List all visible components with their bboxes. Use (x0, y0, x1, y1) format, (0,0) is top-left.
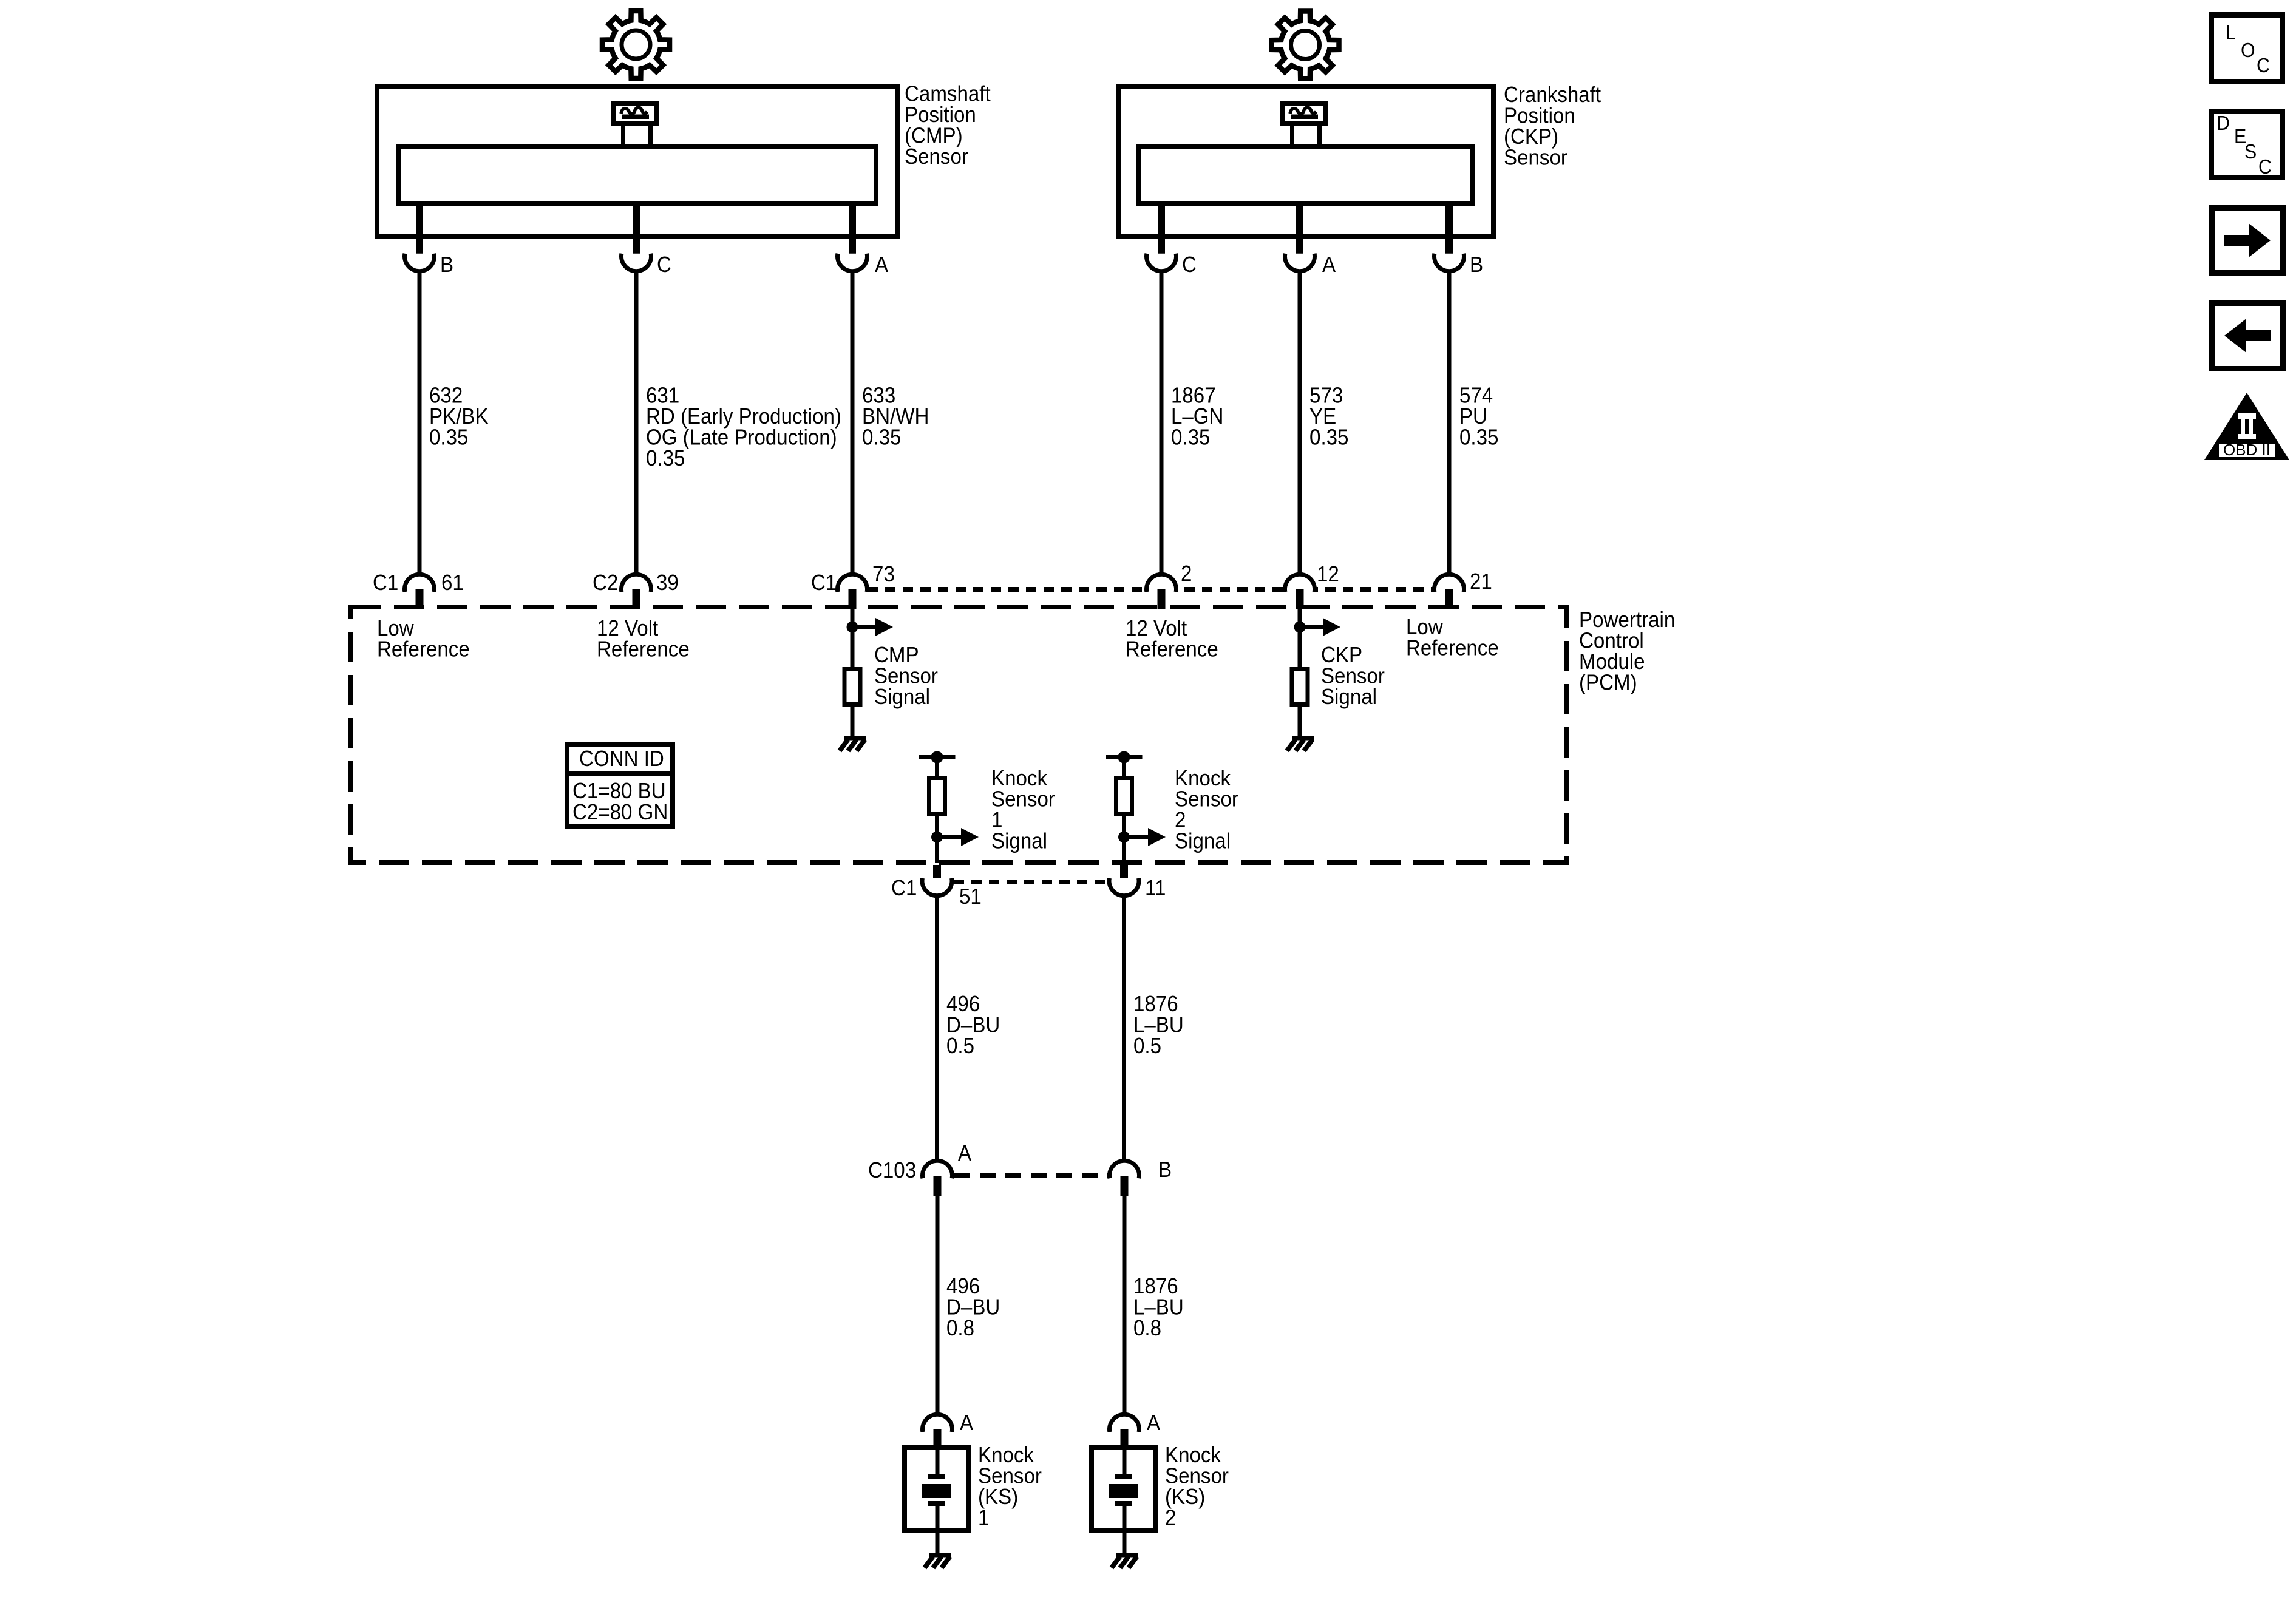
svg-text:1: 1 (978, 1506, 989, 1530)
svg-text:D: D (2216, 112, 2230, 134)
svg-text:2: 2 (1165, 1506, 1176, 1530)
svg-text:B: B (440, 253, 453, 277)
svg-text:Signal: Signal (874, 685, 930, 710)
svg-text:Signal: Signal (1321, 685, 1377, 710)
svg-text:OBD II: OBD II (2223, 441, 2271, 459)
svg-text:0.35: 0.35 (646, 447, 685, 471)
svg-text:C2: C2 (593, 571, 618, 595)
svg-text:A: A (958, 1142, 971, 1166)
svg-text:11: 11 (1145, 876, 1166, 901)
svg-text:A: A (1322, 253, 1336, 277)
svg-text:0.35: 0.35 (1459, 425, 1498, 450)
svg-text:C1: C1 (811, 571, 837, 595)
svg-text:0.35: 0.35 (1171, 425, 1210, 450)
svg-text:Reference: Reference (1406, 636, 1499, 660)
svg-text:Reference: Reference (1126, 637, 1218, 662)
svg-text:0.35: 0.35 (1309, 425, 1348, 450)
svg-text:21: 21 (1470, 570, 1492, 594)
svg-text:39: 39 (656, 571, 679, 595)
svg-text:C103: C103 (868, 1159, 916, 1183)
svg-text:O: O (2241, 39, 2255, 61)
svg-text:C1: C1 (891, 876, 917, 901)
svg-text:A: A (1147, 1411, 1160, 1436)
svg-text:Sensor: Sensor (1504, 146, 1567, 170)
svg-text:B: B (1470, 253, 1483, 277)
svg-text:Signal: Signal (991, 829, 1047, 853)
svg-text:Signal: Signal (1175, 829, 1231, 853)
svg-text:61: 61 (441, 571, 464, 595)
svg-text:(PCM): (PCM) (1579, 671, 1637, 695)
svg-text:A: A (875, 253, 888, 277)
svg-text:2: 2 (1181, 562, 1192, 586)
svg-text:51: 51 (959, 885, 982, 909)
svg-text:S: S (2244, 140, 2257, 163)
svg-text:A: A (960, 1411, 973, 1436)
svg-text:0.8: 0.8 (1133, 1317, 1161, 1341)
svg-text:C: C (657, 253, 671, 277)
svg-text:CONN ID: CONN ID (579, 747, 664, 771)
svg-text:12: 12 (1317, 563, 1339, 587)
svg-text:Sensor: Sensor (905, 145, 968, 169)
svg-text:C: C (1182, 253, 1197, 277)
svg-text:0.8: 0.8 (946, 1317, 974, 1341)
svg-text:0.5: 0.5 (1133, 1034, 1161, 1059)
svg-text:Reference: Reference (597, 637, 690, 662)
svg-text:L: L (2226, 21, 2236, 44)
svg-text:C1=80 BU: C1=80 BU (572, 779, 666, 804)
svg-text:C1: C1 (373, 571, 398, 595)
svg-text:0.5: 0.5 (946, 1034, 974, 1059)
svg-text:C: C (2257, 54, 2270, 76)
svg-text:B: B (1158, 1158, 1172, 1182)
svg-text:73: 73 (872, 563, 895, 587)
svg-text:0.35: 0.35 (429, 425, 468, 450)
svg-text:C: C (2258, 155, 2272, 178)
svg-text:0.35: 0.35 (862, 425, 901, 450)
svg-text:Reference: Reference (377, 637, 470, 662)
svg-text:C2=80 GN: C2=80 GN (572, 801, 668, 825)
